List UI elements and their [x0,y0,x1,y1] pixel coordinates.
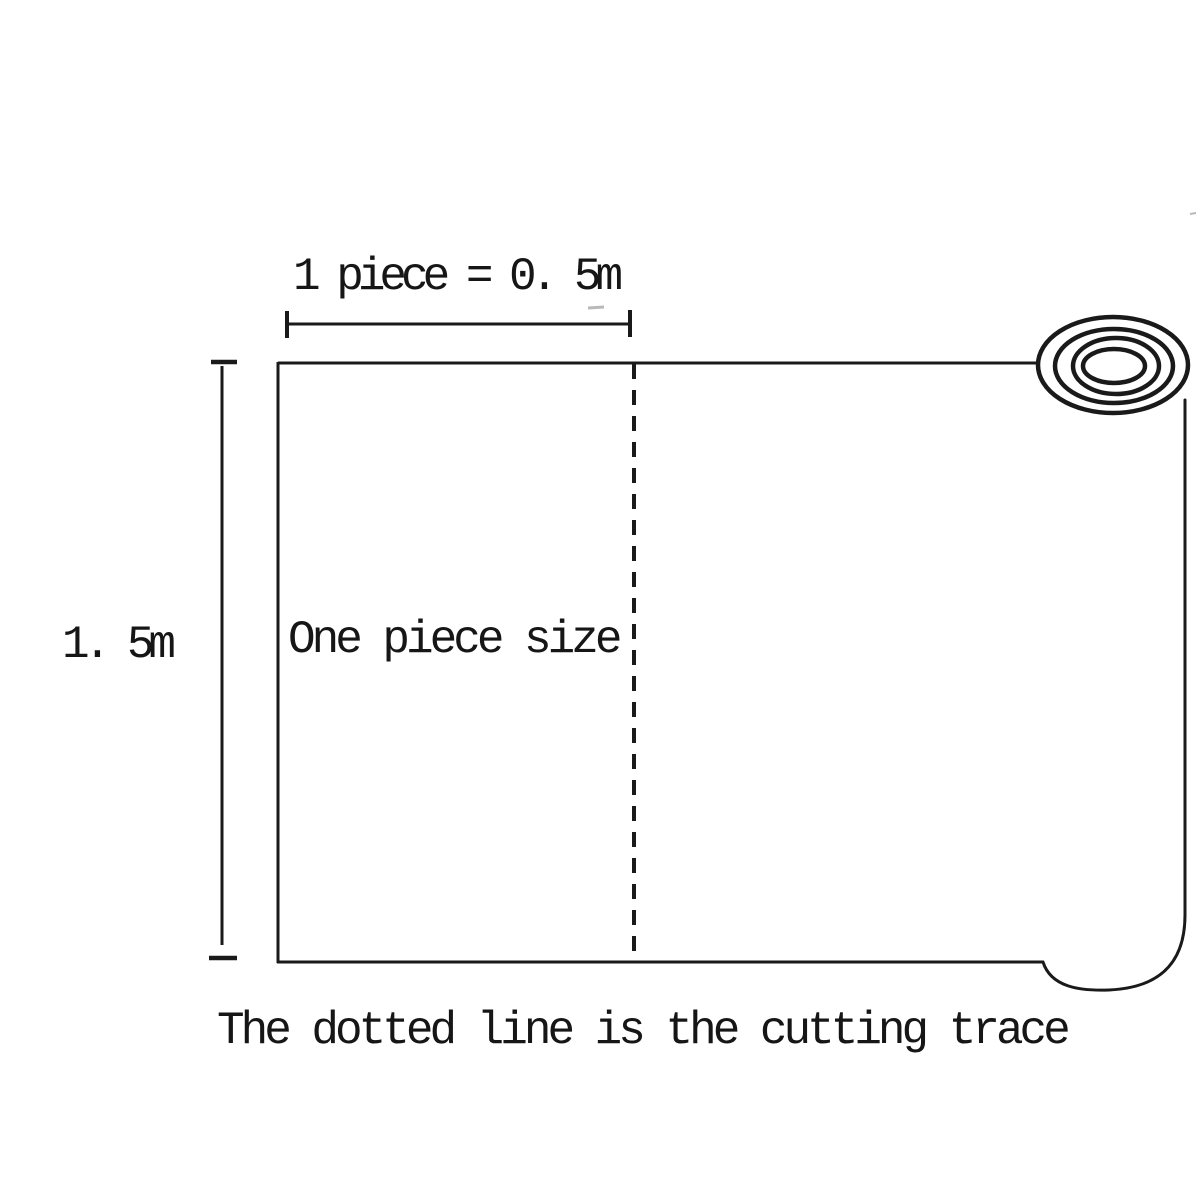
faint-artifact-marks [588,213,1196,308]
left-dimension-label: 1. 5m [62,622,170,668]
top-dimension-line [287,310,630,338]
top-dimension-label: 1 piece = 0. 5m [293,254,617,300]
sheet-right-edge-curl [1043,400,1185,990]
roll-end-icon [1038,317,1188,413]
left-dimension-line [209,362,237,958]
piece-size-label: One piece size [288,617,618,663]
caption-text: The dotted line is the cutting trace [217,1008,1067,1054]
diagram-canvas: 1 piece = 0. 5m 1. 5m One piece size The… [0,0,1200,1200]
